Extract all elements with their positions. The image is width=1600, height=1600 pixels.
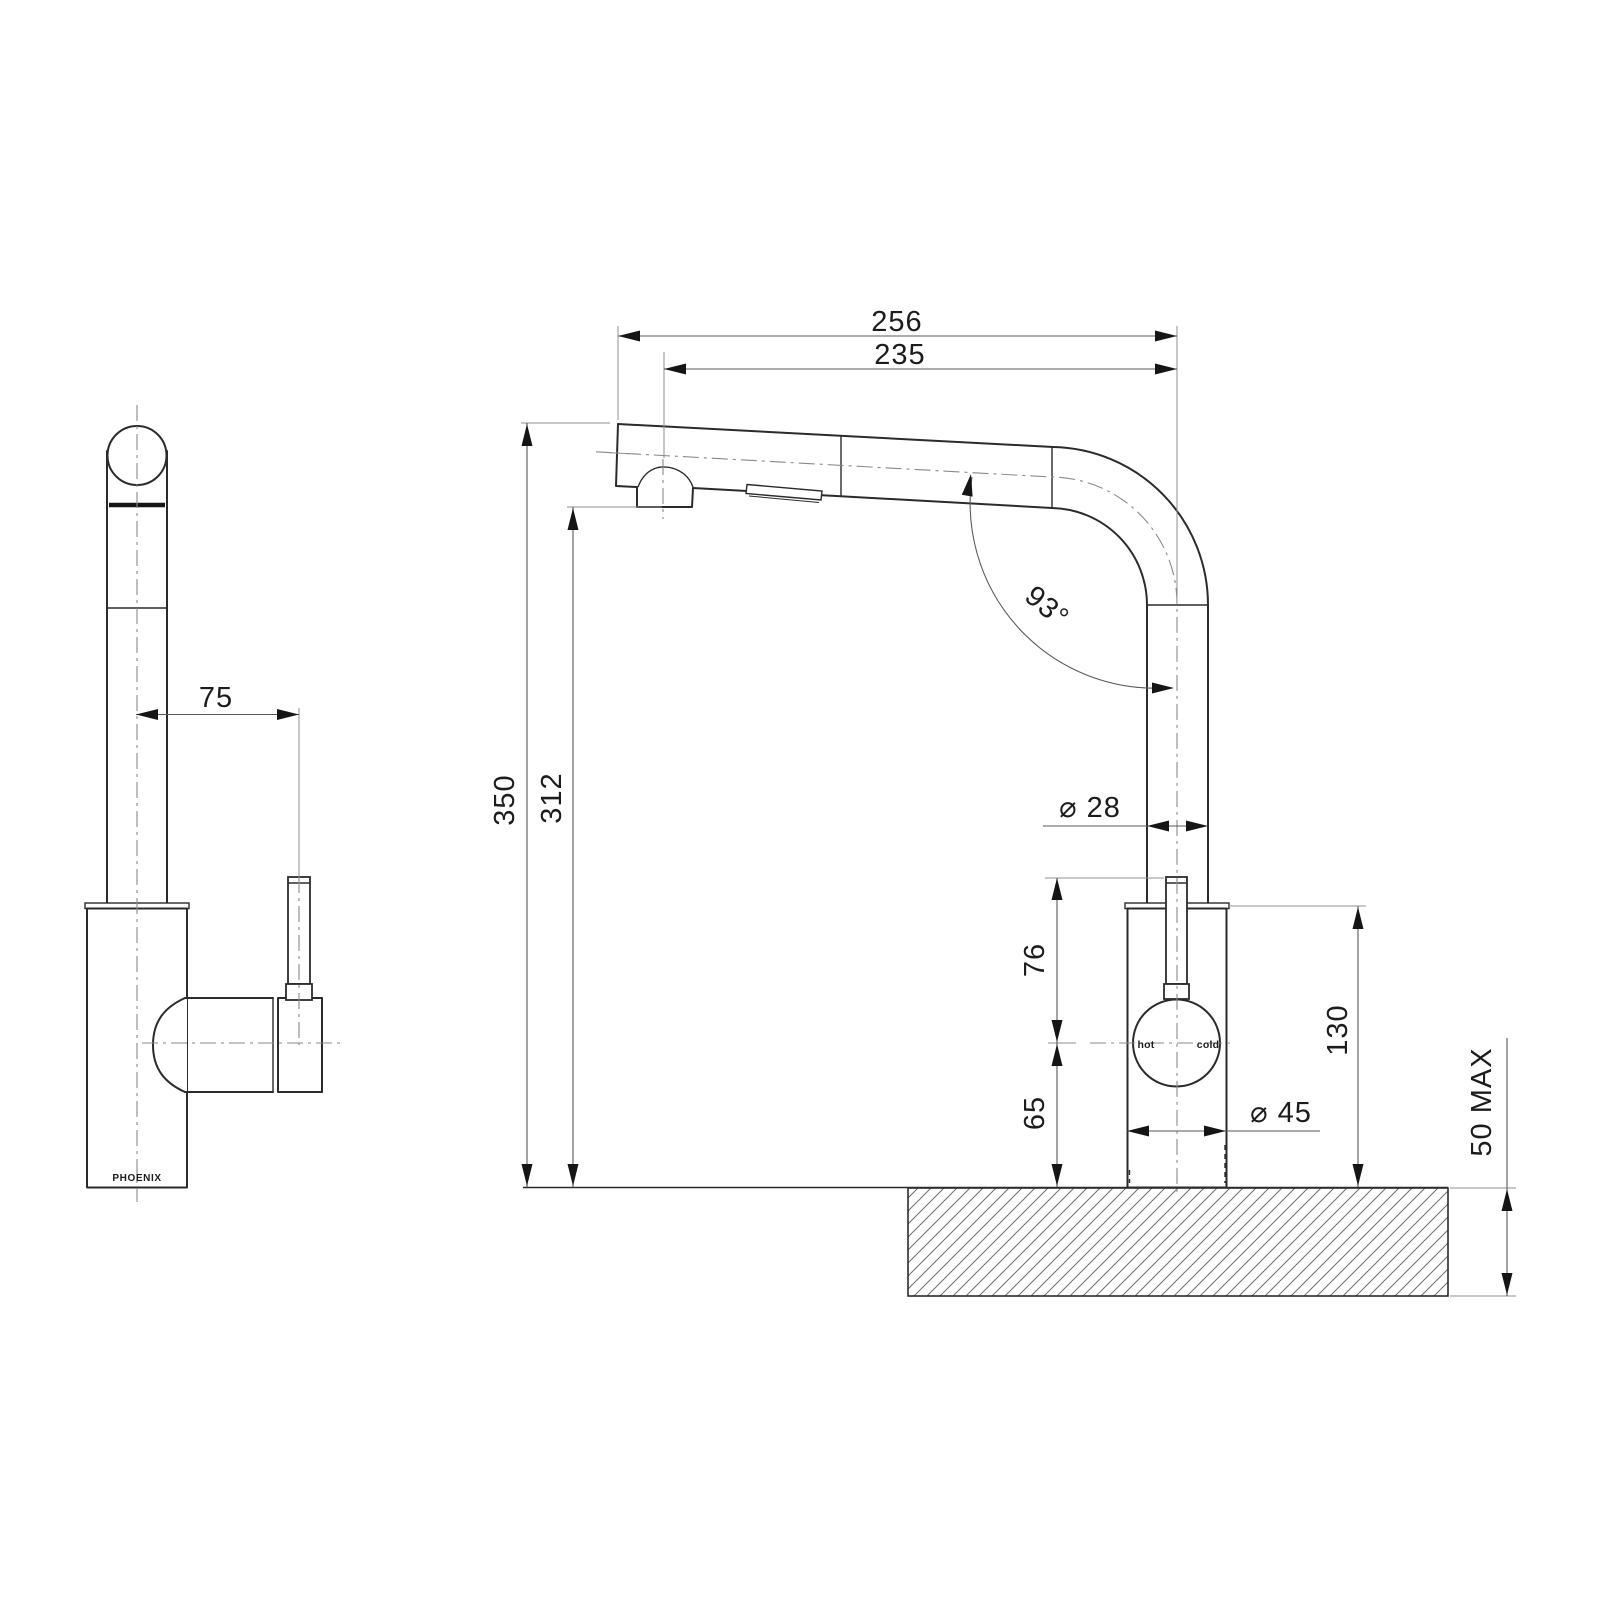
dim-spout-angle: 93° [1019,580,1075,635]
arrow [1353,1164,1364,1186]
dimensions [136,326,1516,1296]
dim-reach-overall: 256 [871,306,922,338]
benchtop-section [523,1188,1448,1297]
drawing-page: 256 235 75 350 312 76 65 130 ⌀ 28 ⌀ 45 5… [0,0,1600,1600]
arrow [1155,331,1177,342]
handle-end-cap [278,998,322,1092]
arrow [1052,1044,1063,1066]
arrow [1502,1273,1513,1295]
dim-handle-above-center: 76 [1019,943,1051,977]
arrow [1502,1189,1513,1211]
dim-bench-max: 50 MAX [1466,1047,1498,1156]
arrow [1147,821,1169,832]
dim-height-overall: 350 [489,774,521,825]
arrow [522,424,533,446]
spray-trigger [746,485,822,501]
arrow [136,709,158,720]
dim-pipe-diameter: ⌀ 28 [1059,792,1121,824]
hot-label: hot [1138,1039,1155,1051]
arrow [522,1164,533,1186]
arrow [1052,878,1063,900]
dim-reach-aerator: 235 [874,339,925,371]
arrow [1353,907,1364,929]
technical-drawing: 256 235 75 350 312 76 65 130 ⌀ 28 ⌀ 45 5… [0,0,1600,1600]
arrow [1052,1020,1063,1042]
arrow [568,1164,579,1186]
dim-body-height: 130 [1322,1004,1354,1055]
arrow [962,473,977,497]
arrow [1155,364,1177,375]
arrow [1186,821,1208,832]
arrow [664,364,686,375]
dim-handle-offset: 75 [199,682,233,714]
dimension-labels: 256 235 75 350 312 76 65 130 ⌀ 28 ⌀ 45 5… [199,306,1498,1157]
front-view [85,426,322,1188]
tip-center-tick [605,452,629,453]
aerator-dome [638,467,693,487]
dim-body-diameter: ⌀ 45 [1250,1097,1312,1129]
spray-head-tip [616,424,637,507]
cold-label: cold [1197,1039,1219,1051]
dim-center-above-bench: 65 [1019,1096,1051,1130]
spout-outer-bend [1053,447,1208,605]
side-view [616,424,1229,1188]
arrow [618,331,640,342]
spout-inner-bend [1052,508,1147,605]
arrow [568,508,579,530]
spout-top-edge [618,424,1053,447]
arrow [277,709,299,720]
dim-height-aerator: 312 [536,772,568,823]
arrow [1152,683,1174,694]
brand-logo-text: PHOENIX [112,1173,161,1184]
aerator-outlet [637,488,693,507]
arrow [1052,1164,1063,1186]
benchtop-hatch [908,1188,1448,1296]
